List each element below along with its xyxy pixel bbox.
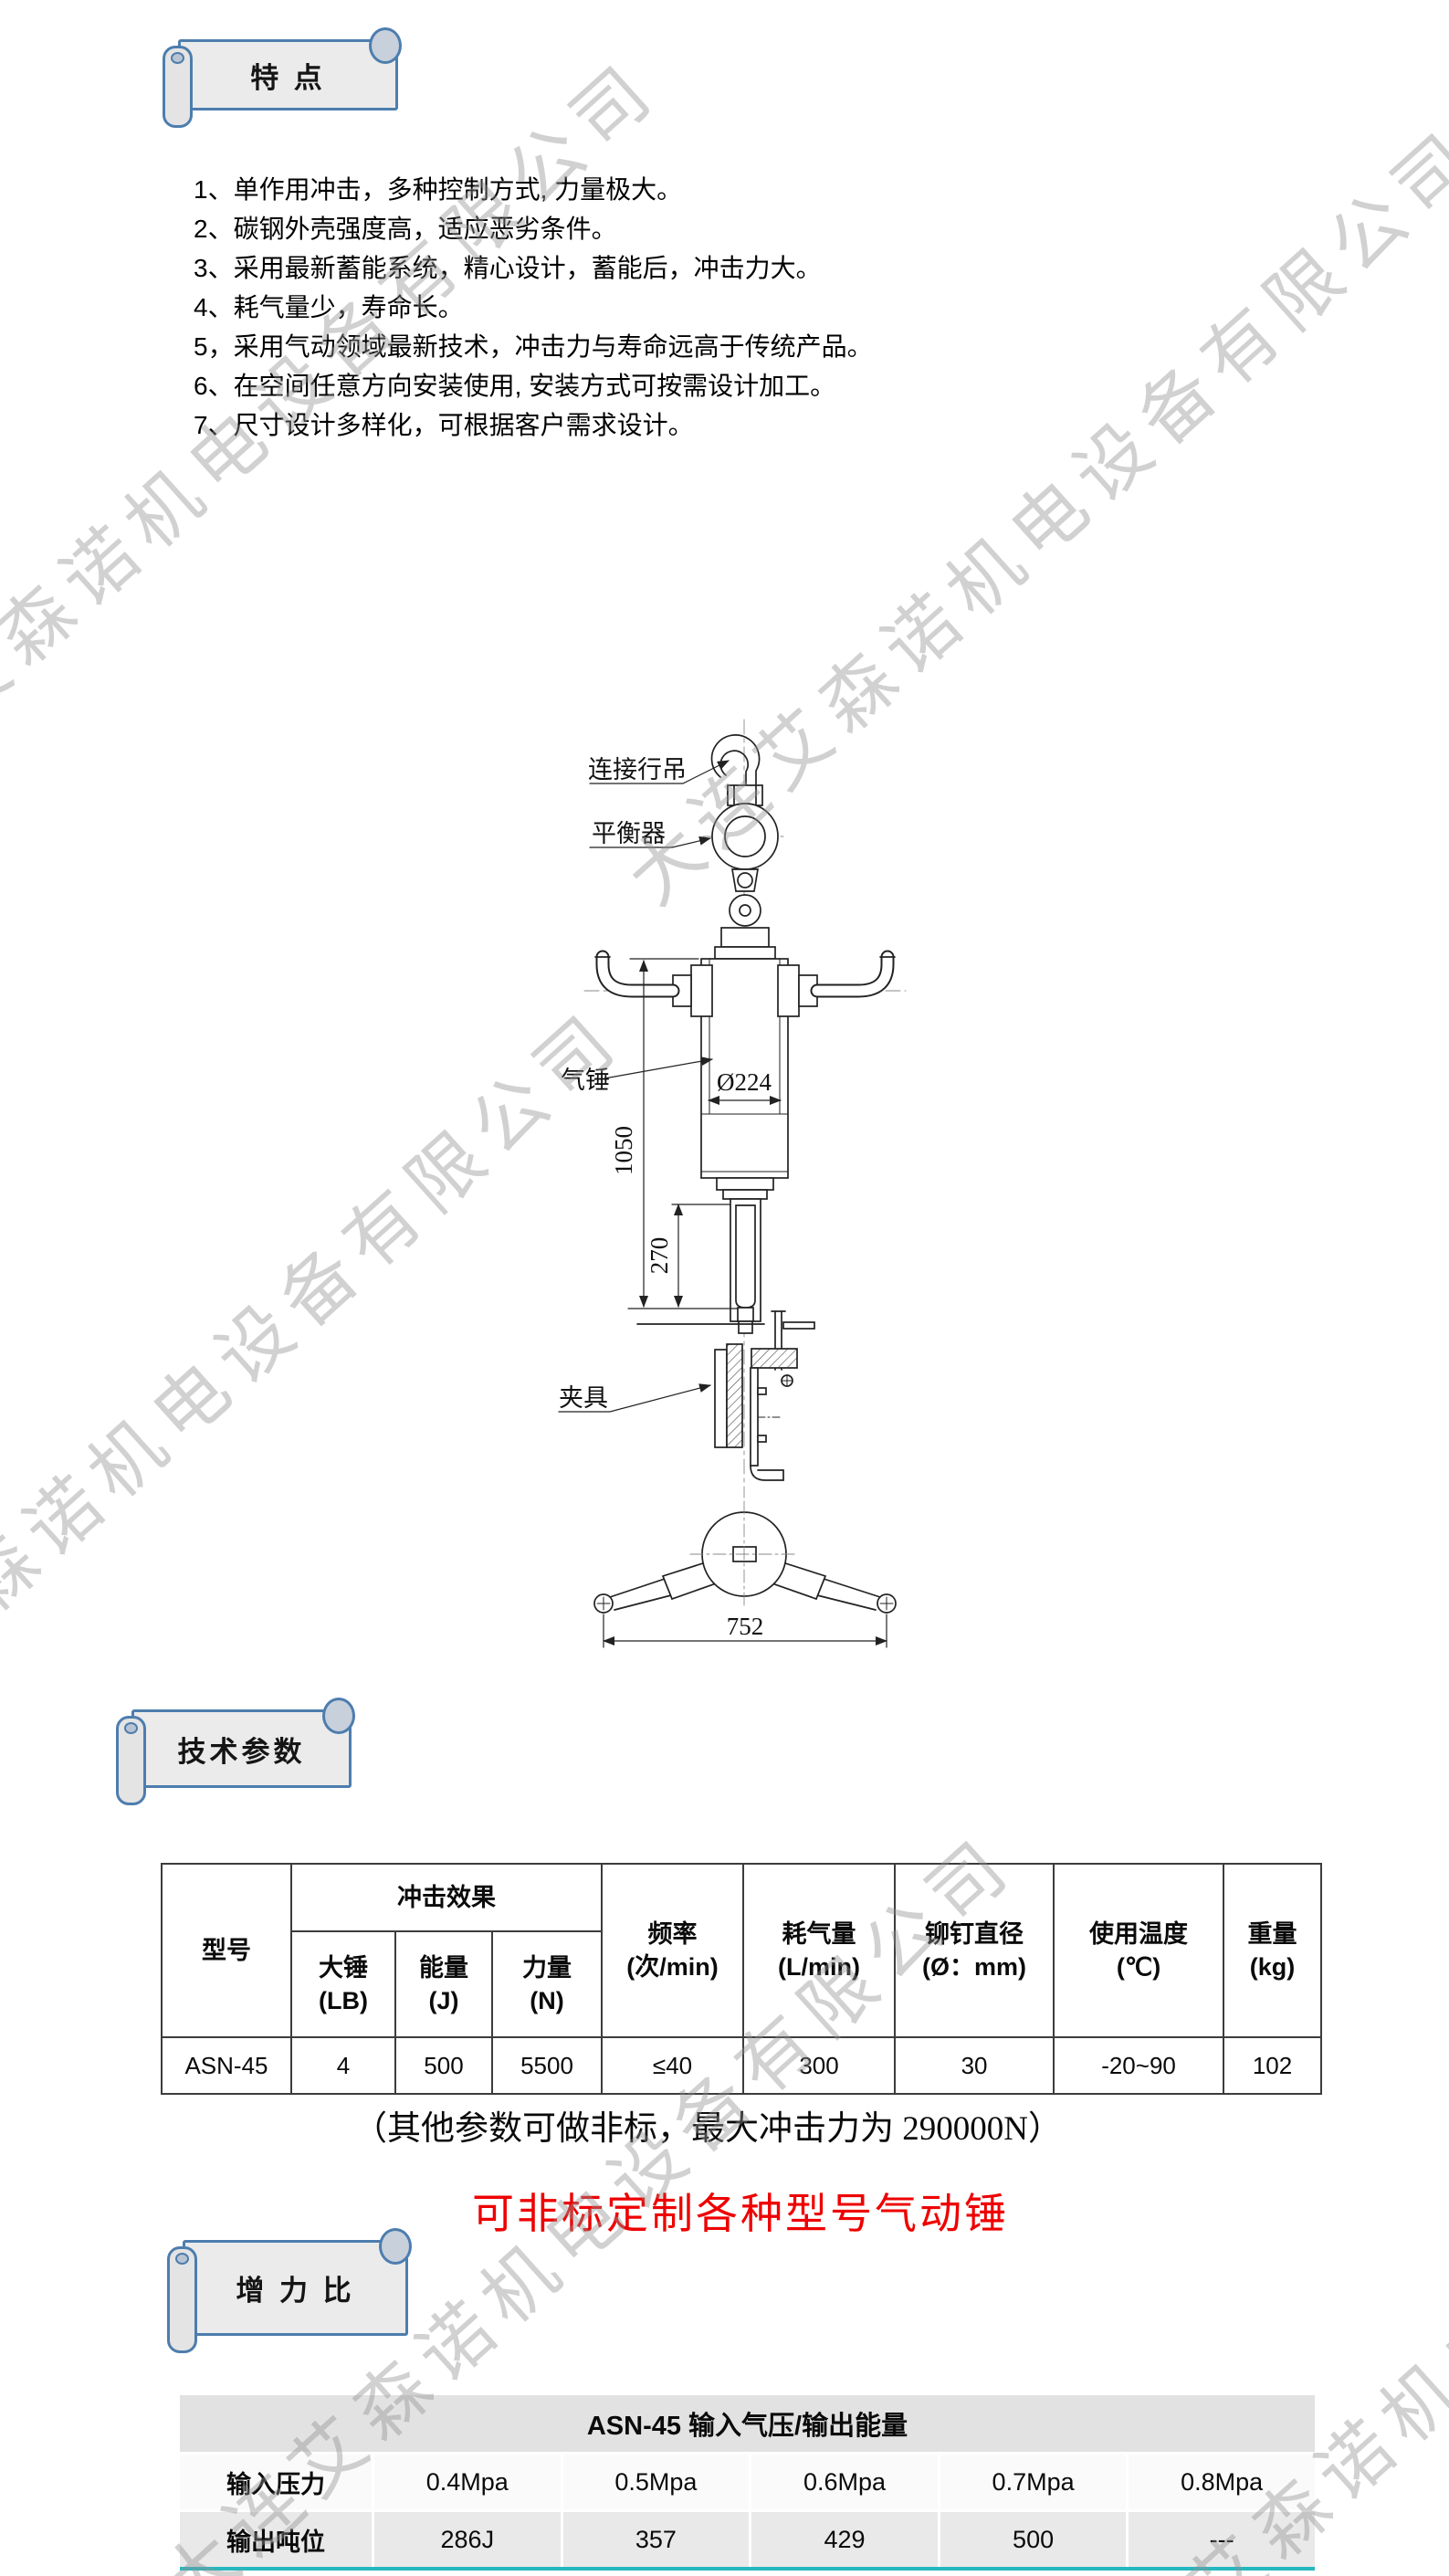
spec-col-rivet: 铆钉直径(Ø：mm): [895, 1864, 1054, 2037]
ratio-table: ASN-45 输入气压/输出能量 输入压力 0.4Mpa 0.5Mpa 0.6M…: [180, 2395, 1315, 2571]
drawing-dim-stroke: 270: [646, 1237, 673, 1275]
ratio-table-title: ASN-45 输入气压/输出能量: [180, 2395, 1315, 2452]
feature-item: 2、碳钢外壳强度高，适应恶劣条件。: [194, 209, 873, 248]
scroll-tube-decoration: [163, 46, 193, 128]
clamp-drawing: [637, 1311, 814, 1480]
features-section-banner: 特 点: [163, 30, 402, 128]
spec-col-force: 力量(N): [492, 1931, 602, 2037]
scroll-hole-decoration: [124, 1722, 138, 1734]
drawing-label-hook: 连接行吊: [588, 756, 687, 783]
ratio-output-row: 输出吨位 286J 357 429 500 ---: [180, 2509, 1315, 2567]
scroll-curl-decoration: [379, 2228, 412, 2265]
scroll-hole-decoration: [171, 52, 184, 64]
ratio-input-label: 输入压力: [180, 2455, 372, 2509]
drawing-dim-total-height: 1050: [610, 1126, 637, 1175]
spec-value-rivet: 30: [895, 2037, 1054, 2094]
drawing-dim-diameter: Ø224: [717, 1068, 772, 1096]
feature-list: 1、单作用冲击，多种控制方式, 力量极大。 2、碳钢外壳强度高，适应恶劣条件。 …: [194, 170, 873, 445]
feature-item: 5，采用气动领域最新技术，冲击力与寿命远高于传统产品。: [194, 327, 873, 366]
spec-col-model: 型号: [162, 1864, 291, 2037]
scroll-tube-decoration: [116, 1716, 146, 1805]
balancer-drawing: [712, 785, 778, 959]
ratio-output-value: 286J: [372, 2512, 561, 2567]
spec-value-force: 5500: [492, 2037, 602, 2094]
spec-value-frequency: ≤40: [602, 2037, 743, 2094]
ratio-input-value: 0.7Mpa: [938, 2455, 1127, 2509]
specs-banner-label: 技术参数: [178, 1729, 306, 1770]
feature-item: 1、单作用冲击，多种控制方式, 力量极大。: [194, 170, 873, 209]
ratio-output-value: 500: [938, 2512, 1127, 2567]
ratio-input-value: 0.8Mpa: [1126, 2455, 1315, 2509]
drawing-label-balancer: 平衡器: [592, 820, 666, 847]
scroll-curl-decoration: [369, 27, 402, 64]
piston-drawing: [717, 1178, 773, 1333]
ratio-input-value: 0.5Mpa: [561, 2455, 750, 2509]
feature-item: 6、在空间任意方向安装使用, 安装方式可按需设计加工。: [194, 366, 873, 405]
spec-col-hammer: 大锤(LB): [291, 1931, 395, 2037]
feature-item: 3、采用最新蓄能系统，精心设计，蓄能后，冲击力大。: [194, 248, 873, 288]
ratio-banner-label: 增 力 比: [236, 2267, 354, 2308]
scroll-curl-decoration: [322, 1698, 355, 1734]
spec-col-energy: 能量(J): [395, 1931, 492, 2037]
spec-col-temp: 使用温度(℃): [1054, 1864, 1223, 2037]
spec-table: 型号 冲击效果 频率(次/min) 耗气量(L/min) 铆钉直径(Ø：mm) …: [161, 1863, 1322, 2095]
ratio-output-value: 429: [749, 2512, 938, 2567]
scroll-tube-decoration: [167, 2246, 197, 2353]
technical-drawing: 连接行吊 平衡器 气锤 夹具 Ø224 1050 270 752: [493, 694, 1004, 1662]
spec-table-row: ASN-45 4 500 5500 ≤40 300 30 -20~90 102: [162, 2037, 1321, 2094]
spec-note: （其他参数可做非标，最大冲击力为 290000N）: [128, 2100, 1287, 2150]
scroll-hole-decoration: [175, 2253, 189, 2265]
ratio-output-value: ---: [1126, 2512, 1315, 2567]
drawing-label-hammer: 气锤: [561, 1067, 610, 1094]
specs-section-banner: 技术参数: [116, 1700, 355, 1805]
spec-value-hammer: 4: [291, 2037, 395, 2094]
ratio-input-value: 0.6Mpa: [749, 2455, 938, 2509]
spec-col-air: 耗气量(L/min): [743, 1864, 895, 2037]
drawing-label-clamp: 夹具: [559, 1384, 608, 1412]
feature-item: 4、耗气量少，寿命长。: [194, 288, 873, 327]
spec-value-model: ASN-45: [162, 2037, 291, 2094]
feature-item: 7、尺寸设计多样化，可根据客户需求设计。: [194, 405, 873, 445]
drawing-dim-span: 752: [727, 1613, 764, 1640]
spec-value-energy: 500: [395, 2037, 492, 2094]
ratio-input-row: 输入压力 0.4Mpa 0.5Mpa 0.6Mpa 0.7Mpa 0.8Mpa: [180, 2452, 1315, 2509]
spec-value-air: 300: [743, 2037, 895, 2094]
spec-value-temp: -20~90: [1054, 2037, 1223, 2094]
spec-col-impact-group: 冲击效果: [291, 1864, 602, 1931]
ratio-section-banner: 增 力 比: [167, 2231, 412, 2353]
spec-value-weight: 102: [1223, 2037, 1321, 2094]
features-banner-label: 特 点: [250, 55, 326, 96]
ratio-output-label: 输出吨位: [180, 2512, 372, 2567]
spec-col-frequency: 频率(次/min): [602, 1864, 743, 2037]
spec-col-weight: 重量(kg): [1223, 1864, 1321, 2037]
ratio-output-value: 357: [561, 2512, 750, 2567]
bottom-view-drawing: [594, 1501, 896, 1613]
datasheet-page: 大连艾森诺机电设备有限公司 大连艾森诺机电设备有限公司 大连艾森诺机电设备有限公…: [0, 0, 1449, 2576]
ratio-input-value: 0.4Mpa: [372, 2455, 561, 2509]
